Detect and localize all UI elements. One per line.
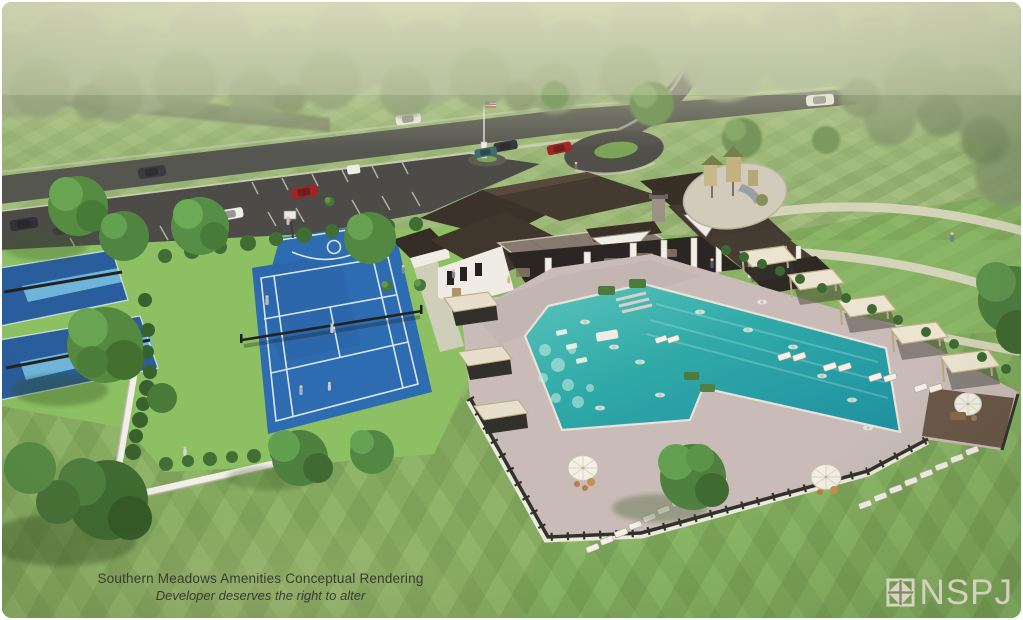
nspj-logo: NSPJ	[885, 575, 1013, 610]
image-frame: Southern Meadows Amenities Conceptual Re…	[2, 2, 1021, 618]
atmosphere	[2, 2, 1021, 618]
nspj-logo-icon	[885, 577, 916, 608]
nspj-logo-text: NSPJ	[920, 575, 1013, 610]
scene	[2, 2, 1021, 618]
rendering-image: Southern Meadows Amenities Conceptual Re…	[0, 0, 1023, 620]
